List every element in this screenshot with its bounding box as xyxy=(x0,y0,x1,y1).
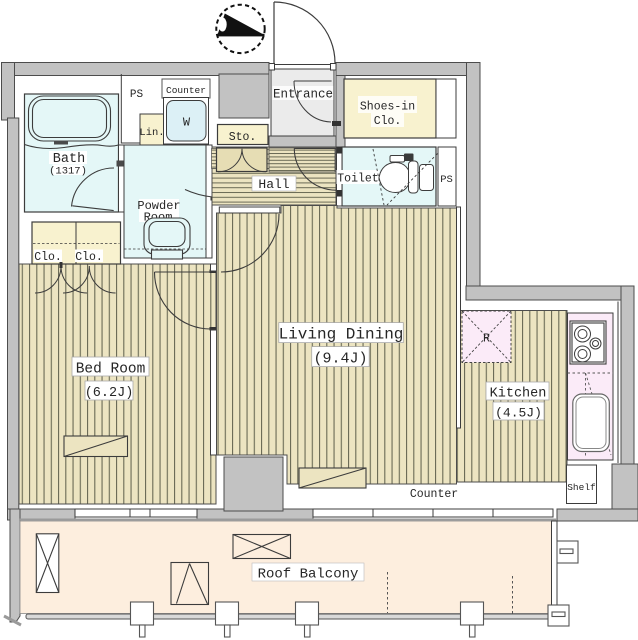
svg-text:(1317): (1317) xyxy=(49,166,87,178)
svg-text:PS: PS xyxy=(440,174,453,186)
svg-text:Sto.: Sto. xyxy=(229,131,257,144)
svg-text:Roof Balcony: Roof Balcony xyxy=(258,567,359,583)
svg-text:Clo.: Clo. xyxy=(374,115,402,128)
svg-text:Living Dining: Living Dining xyxy=(279,326,404,344)
svg-text:Counter: Counter xyxy=(166,85,206,96)
svg-text:Kitchen: Kitchen xyxy=(490,387,547,402)
svg-text:PS: PS xyxy=(130,89,144,101)
svg-text:W: W xyxy=(183,116,191,130)
svg-text:Counter: Counter xyxy=(410,488,458,501)
svg-text:Toilet: Toilet xyxy=(337,173,378,186)
svg-text:Entrance: Entrance xyxy=(273,88,333,102)
svg-text:Hall: Hall xyxy=(258,177,289,192)
svg-text:Clo.: Clo. xyxy=(75,251,103,264)
svg-text:(9.4J): (9.4J) xyxy=(313,351,367,368)
svg-text:(6.2J): (6.2J) xyxy=(85,386,134,401)
svg-text:(4.5J): (4.5J) xyxy=(495,406,542,421)
svg-text:Shelf: Shelf xyxy=(567,482,596,493)
svg-text:Lin.: Lin. xyxy=(139,127,164,139)
svg-text:Bed Room: Bed Room xyxy=(76,362,146,378)
svg-text:Shoes-in: Shoes-in xyxy=(360,101,415,114)
svg-text:Clo.: Clo. xyxy=(34,251,62,264)
svg-text:R: R xyxy=(483,333,490,346)
